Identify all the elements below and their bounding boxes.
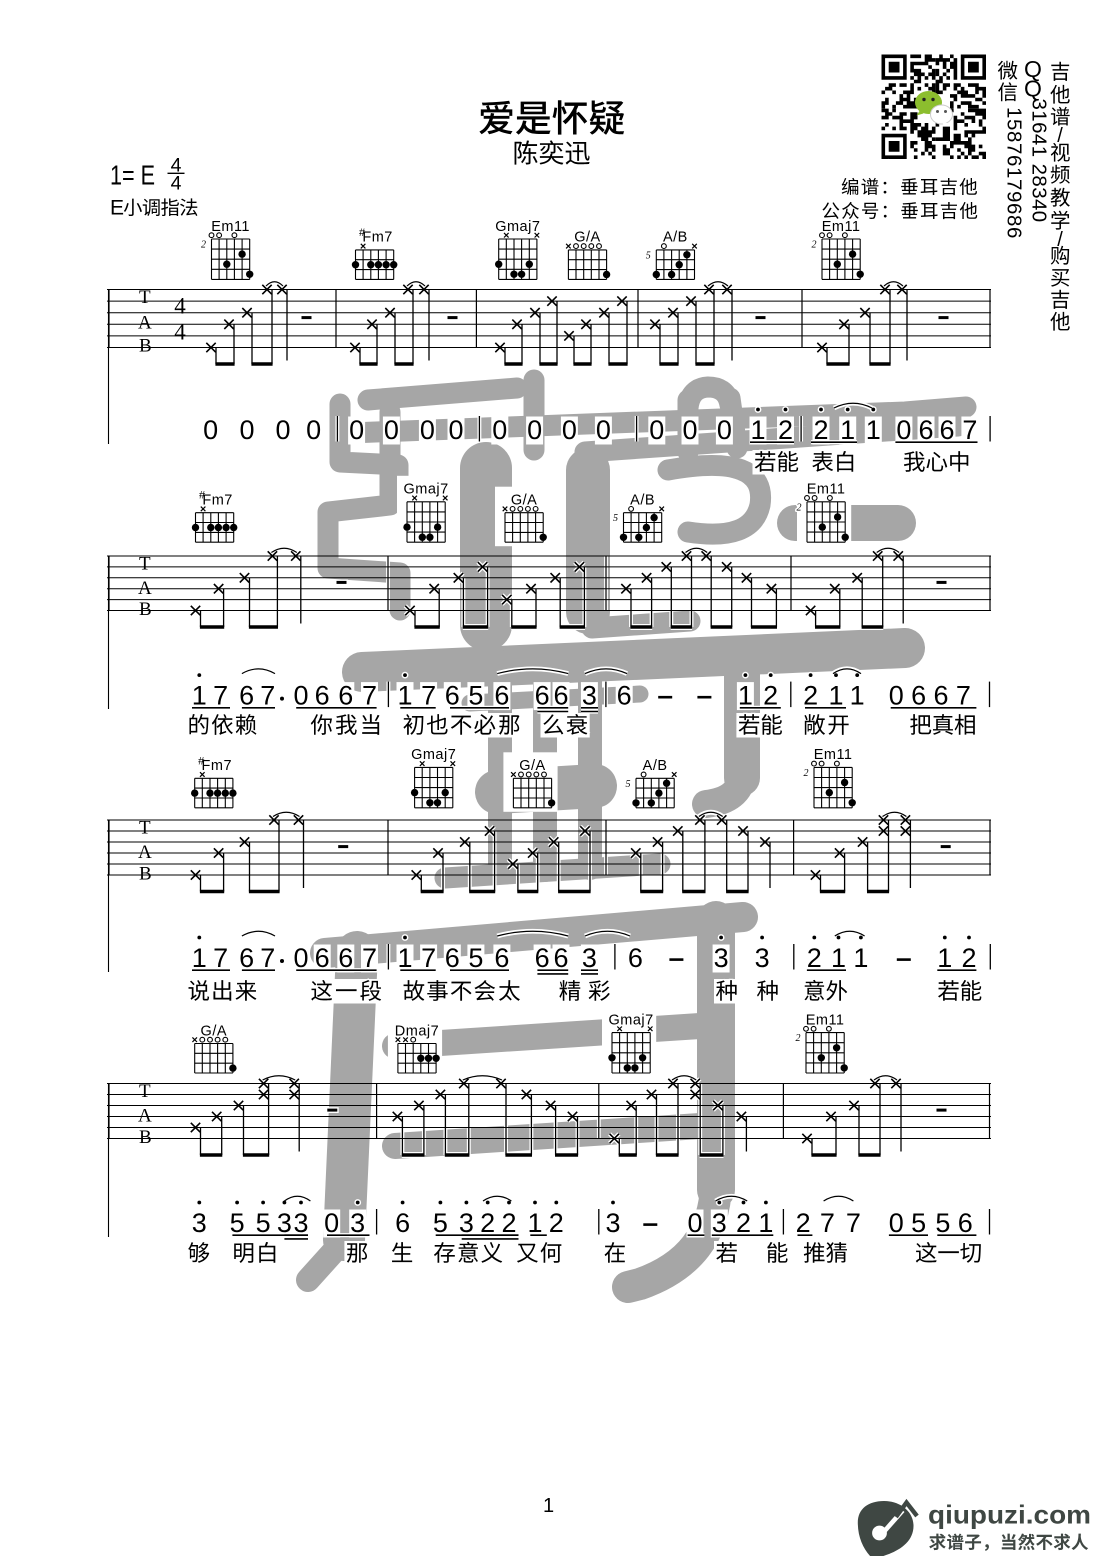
svg-text:31641 28340: 31641 28340: [1028, 99, 1051, 223]
svg-text:5: 5: [911, 1208, 926, 1238]
svg-text:Em11: Em11: [814, 747, 853, 763]
svg-text:6: 6: [338, 681, 353, 711]
svg-text:3: 3: [755, 943, 770, 973]
svg-text:0: 0: [275, 415, 290, 445]
svg-text:1: 1: [828, 681, 843, 711]
svg-text:0: 0: [420, 415, 435, 445]
svg-text:6: 6: [338, 943, 353, 973]
svg-text:/: /: [1057, 125, 1063, 147]
svg-text:Dmaj7: Dmaj7: [395, 1023, 439, 1039]
svg-text:7: 7: [421, 943, 436, 973]
svg-text:A: A: [138, 1106, 152, 1127]
svg-text:7: 7: [362, 943, 377, 973]
svg-text:6: 6: [239, 681, 254, 711]
svg-text:0: 0: [324, 1208, 339, 1238]
svg-text:Gmaj7: Gmaj7: [403, 482, 448, 498]
svg-text:1: 1: [738, 681, 753, 711]
svg-text:T: T: [139, 554, 151, 575]
svg-text:7: 7: [260, 943, 275, 973]
svg-text:3: 3: [350, 1208, 365, 1238]
svg-text:6: 6: [395, 1208, 410, 1238]
svg-text:A/B: A/B: [630, 493, 655, 509]
svg-text:1: 1: [543, 1495, 554, 1517]
svg-text:A: A: [138, 313, 152, 334]
svg-text:6: 6: [494, 943, 509, 973]
svg-text:0: 0: [596, 415, 611, 445]
svg-text:0: 0: [448, 415, 463, 445]
svg-text:6: 6: [628, 943, 643, 973]
svg-text:5: 5: [935, 1208, 950, 1238]
svg-text:6: 6: [535, 681, 550, 711]
svg-text:Em11: Em11: [807, 482, 846, 498]
svg-text:3: 3: [714, 943, 729, 973]
svg-text:2: 2: [796, 1208, 811, 1238]
svg-text:0: 0: [203, 415, 218, 445]
svg-text:0: 0: [649, 415, 664, 445]
svg-text:0: 0: [717, 415, 732, 445]
svg-text:G/A: G/A: [511, 493, 537, 509]
svg-text:6: 6: [315, 681, 330, 711]
svg-text:Fm7: Fm7: [202, 493, 233, 509]
svg-text:15876179686: 15876179686: [1003, 107, 1026, 239]
svg-text:3: 3: [277, 1208, 292, 1238]
svg-text:1: 1: [527, 1208, 542, 1238]
svg-text:5: 5: [646, 250, 651, 261]
svg-text:2: 2: [803, 681, 818, 711]
svg-text:3: 3: [293, 1208, 308, 1238]
svg-text:0: 0: [239, 415, 254, 445]
svg-text:6: 6: [958, 1208, 973, 1238]
svg-text:1: 1: [850, 681, 865, 711]
svg-text:qiupuzi.com: qiupuzi.com: [928, 1500, 1091, 1530]
svg-text:3: 3: [605, 1208, 620, 1238]
svg-text:1: 1: [831, 943, 846, 973]
svg-text:4: 4: [171, 173, 182, 195]
svg-text:5: 5: [230, 1208, 245, 1238]
svg-text:T: T: [139, 1081, 151, 1102]
svg-text:G/A: G/A: [201, 1023, 227, 1039]
svg-text:G/A: G/A: [574, 230, 600, 246]
svg-text:0: 0: [687, 1208, 702, 1238]
svg-text:2: 2: [961, 943, 976, 973]
svg-text:3: 3: [582, 943, 597, 973]
svg-text:3: 3: [582, 681, 597, 711]
svg-text:Fm7: Fm7: [202, 758, 233, 774]
svg-text:6: 6: [911, 681, 926, 711]
svg-text:A: A: [138, 842, 152, 863]
svg-text:7: 7: [846, 1208, 861, 1238]
svg-text:6: 6: [553, 681, 568, 711]
svg-text:0: 0: [527, 415, 542, 445]
svg-text:2: 2: [736, 1208, 751, 1238]
svg-text:5: 5: [468, 943, 483, 973]
svg-text:2: 2: [778, 415, 793, 445]
svg-text:6: 6: [933, 681, 948, 711]
svg-text:6: 6: [445, 681, 460, 711]
svg-text:0: 0: [384, 415, 399, 445]
svg-text:2: 2: [812, 240, 817, 251]
svg-text:7: 7: [213, 681, 228, 711]
svg-text:1: 1: [397, 943, 412, 973]
svg-text:Gmaj7: Gmaj7: [411, 747, 456, 763]
svg-text:0: 0: [889, 1208, 904, 1238]
svg-text:Gmaj7: Gmaj7: [608, 1012, 653, 1028]
svg-text:0: 0: [293, 681, 308, 711]
svg-text:0: 0: [349, 415, 364, 445]
svg-text:4: 4: [174, 294, 186, 319]
svg-text:2: 2: [501, 1208, 516, 1238]
svg-text:2: 2: [201, 240, 206, 251]
svg-text:5: 5: [256, 1208, 271, 1238]
svg-text:A: A: [138, 578, 152, 599]
svg-text:0: 0: [492, 415, 507, 445]
svg-text:7: 7: [260, 681, 275, 711]
svg-text:6: 6: [553, 943, 568, 973]
svg-text:5: 5: [613, 513, 618, 524]
svg-text:2: 2: [807, 943, 822, 973]
svg-text:G/A: G/A: [519, 758, 545, 774]
svg-text:1: 1: [853, 943, 868, 973]
svg-text:0: 0: [682, 415, 697, 445]
svg-text:3: 3: [459, 1208, 474, 1238]
svg-text:1: 1: [937, 943, 952, 973]
svg-text:5: 5: [626, 779, 631, 790]
svg-text:6: 6: [918, 415, 933, 445]
svg-text:7: 7: [362, 681, 377, 711]
svg-text:1: 1: [192, 943, 207, 973]
svg-text:2: 2: [804, 768, 809, 779]
svg-text:2: 2: [797, 502, 802, 513]
svg-text:5: 5: [468, 681, 483, 711]
svg-text:#: #: [359, 227, 366, 239]
svg-text:1: 1: [758, 1208, 773, 1238]
svg-text:0: 0: [293, 943, 308, 973]
svg-text:7: 7: [213, 943, 228, 973]
svg-text:Fm7: Fm7: [362, 230, 393, 246]
svg-text:7: 7: [962, 415, 977, 445]
svg-text:0: 0: [562, 415, 577, 445]
svg-text:#: #: [199, 490, 206, 502]
svg-text:Em11: Em11: [806, 1012, 845, 1028]
svg-text:A/B: A/B: [643, 758, 668, 774]
svg-text:2: 2: [763, 681, 778, 711]
svg-text:6: 6: [315, 943, 330, 973]
svg-text:6: 6: [445, 943, 460, 973]
svg-text:7: 7: [820, 1208, 835, 1238]
svg-text:1: 1: [750, 415, 765, 445]
svg-text:5: 5: [433, 1208, 448, 1238]
svg-text:4: 4: [174, 319, 186, 344]
svg-text:2: 2: [813, 415, 828, 445]
svg-text:2: 2: [796, 1033, 801, 1044]
svg-text:6: 6: [535, 943, 550, 973]
svg-text:6: 6: [617, 681, 632, 711]
svg-text:7: 7: [421, 681, 436, 711]
svg-text:1= E: 1= E: [110, 160, 155, 191]
svg-text:7: 7: [956, 681, 971, 711]
svg-text:A/B: A/B: [663, 230, 688, 246]
svg-text:3: 3: [192, 1208, 207, 1238]
svg-text:1: 1: [840, 415, 855, 445]
svg-text:6: 6: [239, 943, 254, 973]
svg-text:B: B: [139, 599, 152, 620]
svg-text:0: 0: [306, 415, 321, 445]
svg-text:1: 1: [397, 681, 412, 711]
svg-text:T: T: [139, 818, 151, 839]
svg-text:Em11: Em11: [211, 219, 250, 235]
svg-text:0: 0: [896, 415, 911, 445]
svg-text:3: 3: [712, 1208, 727, 1238]
svg-text:B: B: [139, 864, 152, 885]
svg-text:0: 0: [889, 681, 904, 711]
svg-text:6: 6: [939, 415, 954, 445]
svg-text:T: T: [139, 287, 151, 308]
svg-text:6: 6: [494, 681, 509, 711]
svg-text:Em11: Em11: [822, 219, 861, 235]
svg-text:2: 2: [480, 1208, 495, 1238]
svg-text:1: 1: [192, 681, 207, 711]
svg-text:#: #: [198, 755, 205, 767]
svg-text:E: E: [110, 197, 124, 220]
svg-text:2: 2: [549, 1208, 564, 1238]
svg-text:1: 1: [866, 415, 881, 445]
svg-text:B: B: [139, 335, 152, 356]
svg-text:B: B: [139, 1127, 152, 1148]
svg-text:Gmaj7: Gmaj7: [495, 219, 540, 235]
